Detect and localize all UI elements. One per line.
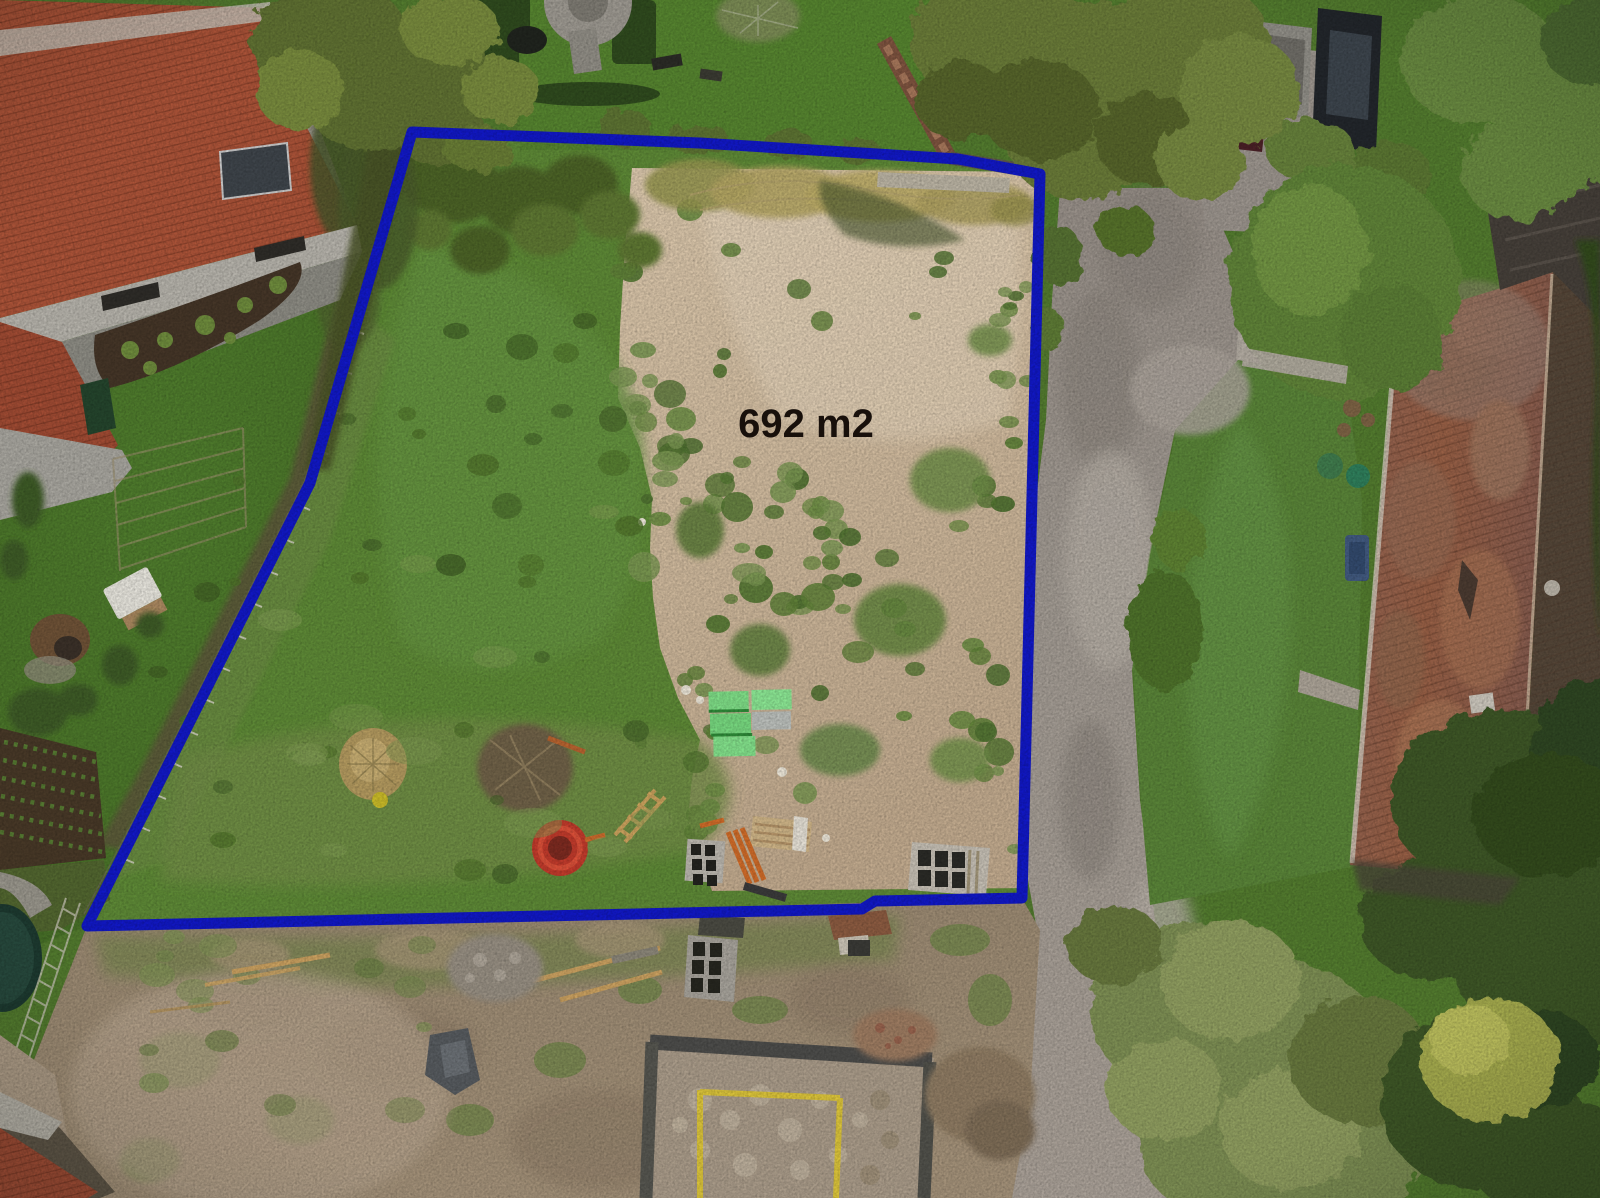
- svg-text:692 m2: 692 m2: [738, 402, 874, 446]
